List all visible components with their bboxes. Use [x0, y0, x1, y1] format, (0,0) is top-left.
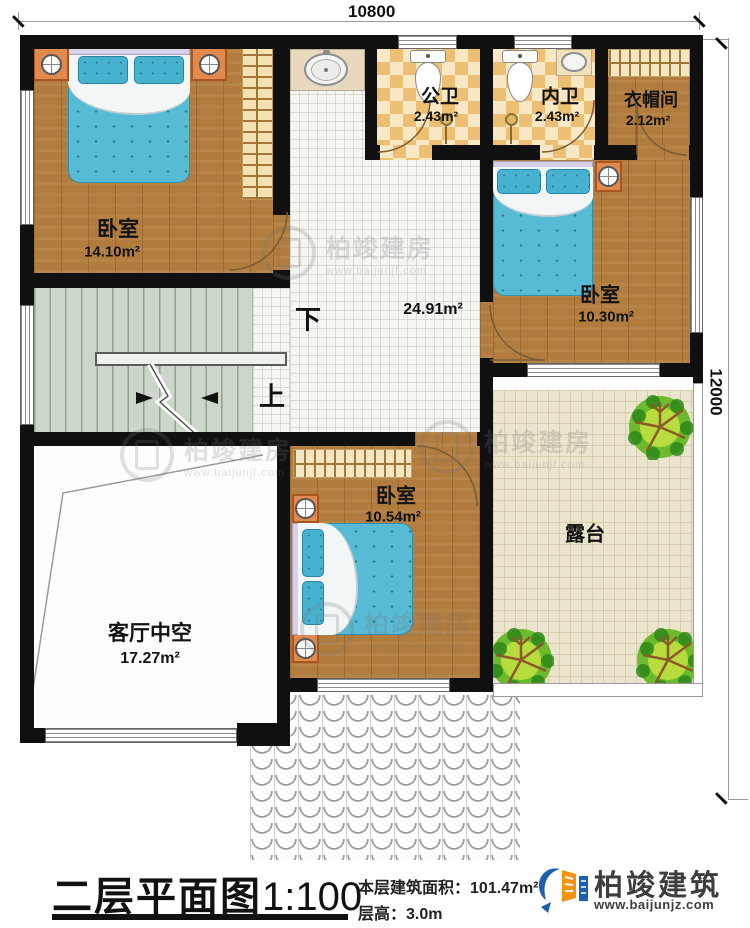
wall-segment — [493, 363, 527, 377]
window — [690, 197, 703, 333]
bedroom-hanger-rack-icon — [293, 449, 412, 478]
wall-segment — [480, 35, 493, 145]
floor-area-label: 本层建筑面积： — [358, 880, 470, 897]
room-area: 2.43m² — [414, 108, 458, 124]
wall-segment — [237, 723, 290, 746]
bed-pillow — [134, 56, 184, 84]
room-area: 10.54m² — [365, 509, 421, 526]
floor-drain-stem — [510, 124, 512, 144]
wall-segment — [690, 35, 703, 197]
cloakroom-hanger-rack-icon — [608, 49, 690, 77]
wall-segment — [477, 432, 493, 446]
room-name: 露台 — [565, 518, 605, 547]
lamp-icon — [598, 166, 619, 187]
terrace-parapet — [493, 683, 703, 697]
dimension-width-value: 10800 — [348, 2, 395, 22]
floor-area-value: 101.47m² — [470, 880, 539, 897]
wardrobe-hanger-rack-icon — [242, 47, 273, 200]
toilet-button — [518, 54, 522, 58]
lamp-icon — [295, 638, 316, 659]
stair-direction-arrow-icon — [201, 392, 218, 404]
floor-area-line: 本层建筑面积：101.47m² — [358, 874, 539, 898]
lamp-icon — [199, 54, 220, 75]
plant-icon — [627, 394, 693, 460]
bed-pillow — [302, 581, 324, 625]
room-area: 17.27m² — [120, 650, 180, 668]
room-name: 卧室 — [97, 213, 139, 243]
dimension-extension — [728, 799, 748, 800]
room-area: 14.10m² — [84, 244, 140, 261]
title-underline — [52, 914, 348, 920]
nightstand — [191, 47, 227, 81]
wall-segment — [290, 678, 317, 692]
wall-segment — [20, 728, 45, 743]
door-arc — [490, 305, 545, 360]
room-area: 24.91m² — [403, 301, 463, 319]
wall-segment — [20, 425, 34, 743]
window — [20, 305, 34, 425]
drain-dot — [324, 68, 328, 72]
wall-segment — [689, 145, 703, 160]
stair-up-label: 上 — [259, 377, 285, 414]
small-basin-icon — [561, 52, 587, 72]
room-name: 卧室 — [376, 480, 416, 509]
bed-pillow — [497, 169, 541, 194]
bed-pillow — [302, 529, 324, 577]
wall-segment — [480, 145, 493, 302]
window — [527, 363, 660, 377]
wall-segment — [20, 225, 34, 305]
lamp-icon — [295, 498, 316, 519]
dimension-tick — [715, 792, 727, 804]
dimension-height-value: 12000 — [706, 368, 726, 415]
floor-height-label: 层高： — [358, 906, 406, 923]
stair-down-label: 下 — [295, 300, 321, 337]
wall-segment — [480, 358, 493, 692]
stair-break-line — [34, 288, 294, 448]
nightstand — [292, 494, 319, 523]
double-height-void-lines — [20, 440, 300, 740]
window — [20, 90, 34, 225]
plan-scale: 1:100 — [262, 875, 362, 919]
wall-segment — [20, 273, 290, 288]
room-name: 内卫 — [541, 82, 579, 109]
nightstand — [595, 161, 622, 192]
room-area: 10.30m² — [578, 309, 634, 326]
bed-pillow — [78, 56, 128, 84]
room-area: 2.12m² — [626, 112, 670, 128]
room-name: 卧室 — [580, 279, 620, 308]
room-name: 客厅中空 — [108, 617, 192, 647]
lamp-icon — [41, 54, 62, 75]
brand-logo-icon — [536, 864, 590, 916]
door-gap-patch — [415, 432, 477, 446]
floor-height-line: 层高：3.0m — [358, 900, 442, 924]
wall-segment — [20, 35, 398, 49]
wall-segment — [660, 363, 703, 377]
toilet-button — [426, 54, 430, 58]
window — [398, 35, 457, 49]
window — [45, 728, 237, 743]
wall-segment — [365, 35, 377, 145]
wall-segment — [20, 35, 34, 90]
floor-drain-stem — [445, 124, 447, 144]
terrace-parapet — [493, 377, 693, 390]
wall-segment — [273, 35, 290, 215]
terrace-parapet — [693, 383, 703, 697]
wall-segment — [594, 145, 637, 160]
window — [514, 35, 572, 49]
room-name: 公卫 — [421, 82, 459, 109]
room-area: 2.43m² — [535, 108, 579, 124]
door-arc — [417, 446, 477, 506]
wall-segment — [595, 35, 608, 145]
floor-height-value: 3.0m — [406, 906, 442, 923]
plan-title-text: 二层平面图 — [52, 875, 262, 919]
faucet-icon — [323, 50, 330, 55]
stair-direction-arrow-icon — [136, 392, 153, 404]
nightstand — [33, 47, 69, 81]
wall-segment — [572, 35, 703, 49]
wall-segment — [450, 678, 493, 692]
dimension-line-right — [728, 38, 729, 800]
room-name: 衣帽间 — [624, 86, 678, 112]
wall-segment — [20, 432, 415, 446]
window — [317, 678, 450, 692]
wall-segment — [277, 432, 290, 746]
bed-pillow — [546, 169, 590, 194]
door-arc — [229, 212, 287, 270]
nightstand — [292, 633, 319, 663]
floor-plan-page: { "dimensions": { "top": "10800", "right… — [0, 0, 750, 928]
brand-website: www.baijunjz.com — [594, 897, 714, 912]
